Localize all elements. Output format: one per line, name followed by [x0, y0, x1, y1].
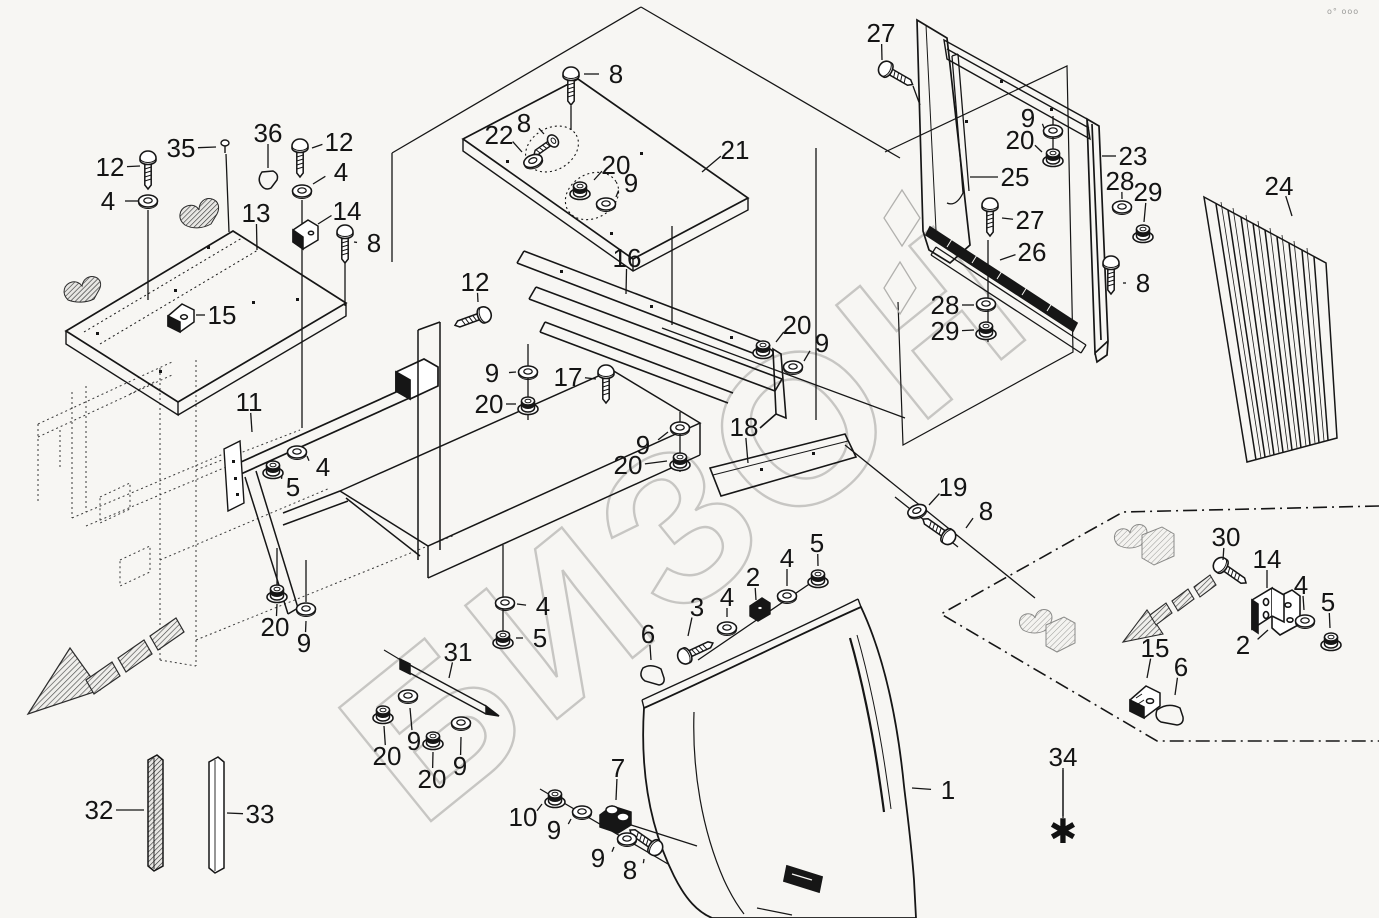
callout-label-20: 20: [261, 612, 290, 642]
callout-label-19: 19: [939, 472, 968, 502]
washer-icon: [297, 603, 316, 617]
callout-label-29: 29: [931, 316, 960, 346]
callout-label-34: 34: [1049, 742, 1078, 772]
footnote-asterisk: ✱: [1049, 812, 1078, 852]
washer-icon: [139, 195, 158, 209]
callout-label-15: 15: [1141, 633, 1170, 663]
callout-leader: [307, 456, 309, 461]
washer-icon: [671, 422, 690, 436]
bolt-icon: [140, 151, 156, 189]
strip-32: [148, 755, 163, 871]
hinge-7: [600, 806, 631, 833]
callout-label-9: 9: [591, 843, 605, 873]
callout-leader: [912, 788, 931, 789]
callout-label-26: 26: [1018, 237, 1047, 267]
grille-24: [1204, 197, 1337, 462]
callout-label-13: 13: [242, 198, 271, 228]
direction-arrow-inset: [1123, 575, 1216, 642]
nut-icon: [1321, 633, 1341, 651]
bolt-icon: [337, 225, 353, 263]
exploded-parts-diagram: БИЗОН o° ooo: [0, 0, 1379, 918]
washer-icon: [293, 185, 312, 199]
callout-label-7: 7: [611, 753, 625, 783]
nut-icon: [263, 461, 283, 479]
washer-icon: [784, 361, 803, 375]
callout-leader: [966, 518, 973, 528]
callout-label-4: 4: [1294, 570, 1308, 600]
callout-label-25: 25: [1001, 162, 1030, 192]
callout-label-30: 30: [1212, 522, 1241, 552]
callout-label-31: 31: [444, 637, 473, 667]
callout-label-27: 27: [867, 18, 896, 48]
washer-icon: [519, 366, 538, 380]
callout-label-9: 9: [547, 815, 561, 845]
parts-diagram-page: БИЗОН o° ooo: [0, 0, 1379, 918]
bolt-icon: [598, 365, 614, 403]
callout-leader: [962, 330, 974, 331]
washer-icon: [1044, 125, 1063, 139]
callout-label-3: 3: [690, 592, 704, 622]
clip-6b-hole: [1168, 711, 1176, 716]
callout-label-27: 27: [1016, 205, 1045, 235]
callout-leader: [539, 128, 544, 134]
callout-label-8: 8: [1136, 268, 1150, 298]
callout-label-20: 20: [1006, 125, 1035, 155]
callout-label-4: 4: [101, 186, 115, 216]
nut-icon: [518, 397, 538, 415]
hood-latch-15: [168, 304, 194, 332]
callout-label-6: 6: [641, 619, 655, 649]
nut-icon: [570, 182, 590, 200]
bolt-icon: [918, 513, 958, 548]
callout-label-28: 28: [1106, 166, 1135, 196]
seal-strips: [148, 755, 224, 873]
callout-leader: [1035, 145, 1042, 152]
callout-label-21: 21: [721, 135, 750, 165]
callout-label-9: 9: [453, 751, 467, 781]
corner-stamp: o° ooo: [1327, 7, 1359, 16]
callout-label-1: 1: [941, 775, 955, 805]
washer-icon: [573, 806, 592, 820]
callout-leader: [509, 372, 516, 373]
callout-label-2: 2: [1236, 630, 1250, 660]
callout-label-20: 20: [614, 450, 643, 480]
direction-arrow-main: [28, 618, 184, 714]
callout-label-9: 9: [815, 328, 829, 358]
washer-icon: [288, 446, 307, 460]
callout-label-29: 29: [1134, 177, 1163, 207]
callout-leader: [1258, 630, 1268, 639]
callout-leader: [702, 156, 721, 172]
nut-icon: [545, 790, 565, 808]
callout-label-8: 8: [517, 108, 531, 138]
callout-label-17: 17: [554, 362, 583, 392]
washer-icon: [1296, 615, 1315, 629]
callout-leader: [513, 142, 522, 152]
callout-label-35: 35: [167, 133, 196, 163]
nut-icon: [267, 585, 287, 603]
nut-icon: [1133, 225, 1153, 243]
callout-leader: [1042, 124, 1044, 128]
bolt-icon: [452, 305, 493, 333]
callout-leader: [313, 176, 325, 184]
callout-label-4: 4: [334, 157, 348, 187]
callout-label-8: 8: [979, 496, 993, 526]
callout-label-12: 12: [461, 267, 490, 297]
callout-label-5: 5: [286, 472, 300, 502]
callout-label-9: 9: [624, 168, 638, 198]
callout-label-16: 16: [613, 243, 642, 273]
callout-label-15: 15: [208, 300, 237, 330]
nut-icon: [808, 570, 828, 588]
callout-label-4: 4: [780, 543, 794, 573]
washer-icon: [618, 833, 637, 847]
callout-label-8: 8: [609, 59, 623, 89]
bolt-icon: [292, 139, 308, 177]
callout-label-20: 20: [418, 764, 447, 794]
callout-leader: [312, 144, 322, 148]
callout-leader: [1002, 218, 1013, 219]
callout-label-12: 12: [325, 127, 354, 157]
strip-33: [209, 757, 224, 873]
washer-icon: [778, 590, 797, 604]
callout-leader: [537, 804, 542, 811]
washer-icon: [977, 298, 996, 312]
pin-icon: [221, 140, 229, 153]
washer-icon: [399, 690, 418, 704]
callout-label-18: 18: [730, 412, 759, 442]
callout-leader: [568, 819, 571, 824]
callout-leader: [616, 191, 619, 197]
callout-leader: [127, 166, 140, 167]
callout-label-14: 14: [333, 196, 362, 226]
washer-icon: [1113, 201, 1132, 215]
callout-label-10: 10: [509, 802, 538, 832]
strip-25: [947, 54, 969, 204]
callout-label-20: 20: [783, 310, 812, 340]
callout-label-32: 32: [85, 795, 114, 825]
clip-36: [259, 171, 277, 189]
callout-label-20: 20: [475, 389, 504, 419]
callout-label-12: 12: [96, 152, 125, 182]
callout-label-9: 9: [485, 358, 499, 388]
callout-leader: [318, 215, 331, 224]
clip-6a-hole: [651, 672, 659, 677]
callout-label-8: 8: [623, 855, 637, 885]
callout-label-11: 11: [236, 387, 263, 417]
callout-label-14: 14: [1253, 544, 1282, 574]
callout-label-36: 36: [254, 118, 283, 148]
callout-label-9: 9: [297, 628, 311, 658]
cover-panel-13: [66, 231, 346, 415]
callout-label-22: 22: [485, 120, 514, 150]
washer-icon: [452, 717, 471, 731]
callout-label-24: 24: [1265, 171, 1294, 201]
bolt-icon: [876, 59, 917, 92]
watermark-text: БИЗОН: [299, 176, 1072, 865]
callout-label-8: 8: [367, 228, 381, 258]
washer-icon: [718, 622, 737, 636]
washer-icon: [597, 198, 616, 212]
callout-leader: [1000, 255, 1016, 260]
callout-leader: [198, 147, 216, 148]
bracket-14a: [293, 220, 318, 249]
callout-label-4: 4: [316, 452, 330, 482]
callout-label-33: 33: [246, 799, 275, 829]
callout-leader: [612, 847, 614, 852]
washer-icon: [496, 597, 515, 611]
callout-leader: [227, 813, 243, 814]
bolt-icon: [1210, 555, 1250, 590]
callout-label-4: 4: [720, 582, 734, 612]
callout-label-20: 20: [373, 741, 402, 771]
callout-label-9: 9: [407, 726, 421, 756]
bolt-icon: [982, 198, 998, 236]
hood-handle: [784, 866, 822, 892]
callout-label-5: 5: [810, 528, 824, 558]
callout-label-6: 6: [1174, 652, 1188, 682]
nut-icon: [1043, 149, 1063, 167]
callout-label-5: 5: [1321, 587, 1335, 617]
callout-label-2: 2: [746, 562, 760, 592]
callout-label-4: 4: [536, 591, 550, 621]
callout-label-5: 5: [533, 623, 547, 653]
callout-leader: [643, 859, 644, 863]
